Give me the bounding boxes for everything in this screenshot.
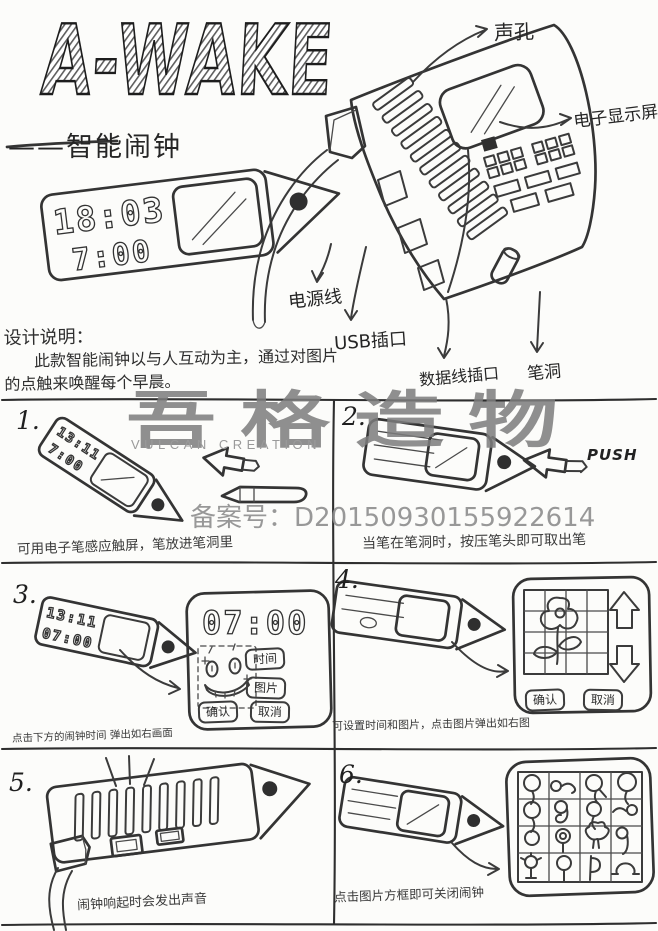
panel3-popup-arrow [120,650,180,694]
button-cluster-sketch [479,116,585,215]
sound-wave-lines [106,756,154,786]
logo-title: A-WAKE [39,6,337,118]
up-arrow-icon [610,592,639,628]
front-view-sketch: 18:03 7:00 [40,160,345,282]
panel6-popup-arrow [452,843,499,875]
front-time-top: 18:03 [51,190,167,243]
design-sketch-page: A-WAKE [0,0,658,931]
photo-grid [524,590,608,674]
annotation-usb-port: USB插口 [333,324,408,355]
registration-number: 备案号：D20150930155922614 [190,497,595,534]
annotation-sound-hole: 声孔 [494,15,535,45]
front-time-bottom: 7:00 [70,234,154,279]
panel5-number: 5. [9,768,33,797]
plug-socket-sketch [50,835,92,871]
panel6-popup-screen [506,758,655,897]
sketch-button-confirm-p4: 确认 [525,688,566,711]
speaker-slots [75,777,219,841]
panel3-clock-sketch: 13:11 07:00 [34,596,200,676]
panel1-number: 1. [16,406,40,435]
port-holes-sketch [378,171,444,290]
sketch-button-cancel-p3: 取消 [250,701,290,724]
panel3-number: 3. [13,580,37,609]
down-arrow-icon [610,646,639,682]
pen-hole [289,191,309,211]
panel4-number: 4. [335,565,359,594]
panel6-number: 6. [339,760,363,789]
pen-cylinder-sketch [489,246,521,286]
watermark-en: VULCAN CREATION [131,437,321,452]
panel6-clock-sketch [338,776,507,851]
power-cord-sketch [49,868,72,930]
sketch-button-confirm-p3: 确认 [198,700,239,723]
annotation-pen-hole: 笔洞 [526,357,562,385]
flower-doodle [534,598,581,664]
touch-screen-sketch [172,178,264,256]
sketch-button-time: 时间 [244,647,285,671]
sketch-button-cancel-p4: 取消 [583,689,623,712]
subtitle: ——智能闹钟 [8,125,182,164]
popup-time: 07:00 [202,604,308,642]
push-label: PUSH [587,446,638,464]
sketch-button-picture: 图片 [246,676,287,699]
panel5-back-view-sketch [44,756,316,872]
